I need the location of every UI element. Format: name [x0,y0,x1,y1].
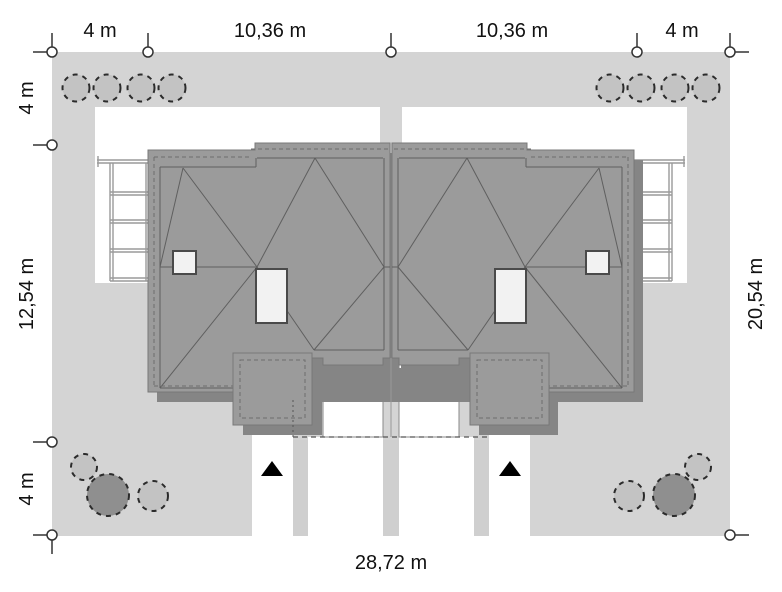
tree-icon [87,474,129,516]
chimney-large-right [495,269,526,323]
chimney-small-left [173,251,196,274]
tree-icon [128,75,155,102]
tree-icon [63,75,90,102]
dimension-marker-icon [725,33,749,57]
dim-label-top-3: 10,36 m [476,20,548,42]
dimension-marker-icon [33,437,57,447]
dim-label-left-1: 4 m [16,81,38,114]
tree-icon [662,75,689,102]
dim-label-bottom-1: 28,72 m [355,552,427,574]
chimney-small-right [586,251,609,274]
dim-label-right-1: 20,54 m [745,258,767,330]
tree-icon [685,454,711,480]
dimension-marker-icon [33,140,57,150]
walkway-right [489,425,530,536]
driveway-left [308,437,383,536]
dimension-marker-icon [33,530,57,554]
dimension-marker-icon [632,33,642,57]
chimney-large-left [256,269,287,323]
tree-icon [693,75,720,102]
dim-label-top-2: 10,36 m [234,20,306,42]
tree-icon [94,75,121,102]
path-strip [383,440,399,536]
tree-icon [71,454,97,480]
dimension-marker-icon [725,530,749,540]
entrance-canopy-right [470,353,549,425]
dimension-marker-icon [143,33,153,57]
walkway-left [252,425,293,536]
tree-icon [614,481,644,511]
path-strip [293,440,308,536]
tree-icon [159,75,186,102]
tree-icon [597,75,624,102]
path-strip [474,440,489,536]
dim-label-top-4: 4 m [665,20,698,42]
site-plan-canvas: 4 m 10,36 m 10,36 m 4 m 4 m 12,54 m 4 m … [0,0,782,592]
dimension-marker-icon [33,33,57,57]
tree-icon [138,481,168,511]
dimension-marker-icon [386,33,396,57]
site-plan-drawing: 4 m 10,36 m 10,36 m 4 m 4 m 12,54 m 4 m … [0,0,782,592]
dim-label-top-1: 4 m [83,20,116,42]
driveway-right [399,437,474,536]
entrance-canopy-left [233,353,312,425]
tree-icon [628,75,655,102]
dim-label-left-3: 4 m [16,472,38,505]
dim-label-left-2: 12,54 m [16,258,38,330]
tree-icon [653,474,695,516]
